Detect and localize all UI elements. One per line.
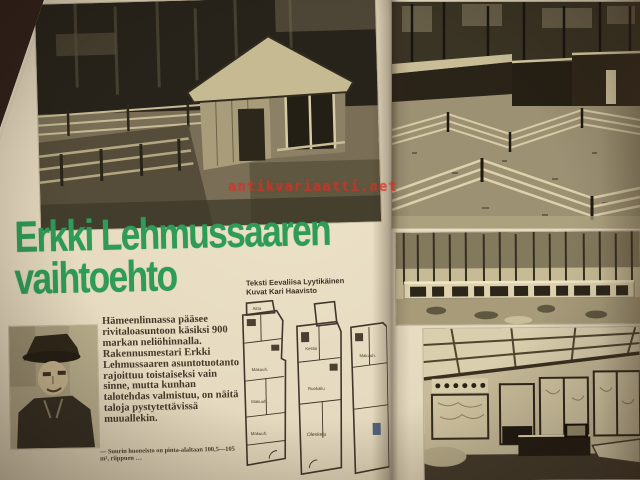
plan-label-ruokailu: Ruokailu: [308, 386, 325, 391]
magazine-spread: Aitta Makuuh. Makuuh. Makuuh. Keittiö Ru…: [0, 0, 640, 480]
floorplan-unit-a: [242, 300, 287, 465]
page-gutter-shadow: [372, 0, 410, 480]
article-credits: Teksti Eevaliisa Lyytikäinen Kuvat Kari …: [246, 275, 376, 297]
plan-label-oleskelu: Oleskelu: [307, 432, 327, 438]
plan-label-keittio: Keittiö: [305, 346, 318, 351]
magazine-photo: Aitta Makuuh. Makuuh. Makuuh. Keittiö Ru…: [0, 0, 640, 480]
portrait-photo-art: [9, 325, 99, 449]
floorplan-caption: — Suurin huoneisto on pinta-alaltaan 100…: [100, 446, 242, 464]
article-intro-text: Hämeenlinnassa pääsee rivitaloasuntoon k…: [102, 314, 244, 426]
photo-portrait-man: [9, 325, 99, 449]
playground-photo-art: [35, 0, 381, 231]
floorplan-drawing: Aitta Makuuh. Makuuh. Makuuh. Keittiö Ru…: [236, 297, 389, 480]
plan-label-makuuh-3: Makuuh.: [251, 431, 268, 436]
plan-label-aitta: Aitta: [253, 306, 262, 311]
headline-line2: vaihtoehto: [14, 254, 177, 302]
photo-playground-yard: [35, 0, 381, 231]
playhouse-door: [238, 108, 265, 161]
watermark-text: antikvariaatti.net: [228, 179, 398, 195]
credit-photo-author: Kuvat Kari Haavisto: [246, 285, 376, 298]
plan-label-makuuh-1: Makuuh.: [252, 367, 269, 372]
floorplan-art: Aitta Makuuh. Makuuh. Makuuh. Keittiö Ru…: [236, 297, 389, 480]
plan-label-makuuh-2: Makuuh.: [251, 399, 268, 404]
right-page-edge-shade: [600, 0, 640, 480]
